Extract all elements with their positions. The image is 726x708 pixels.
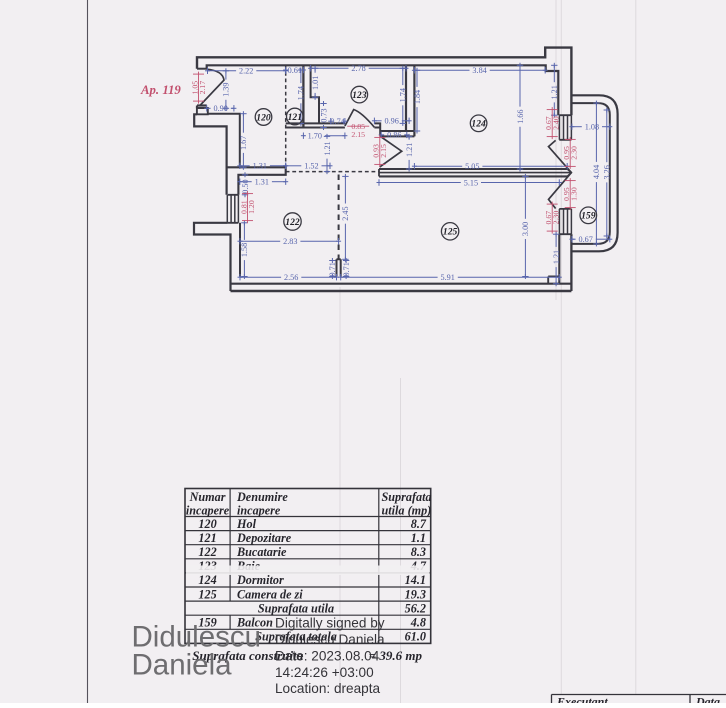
svg-text:Depozitare: Depozitare <box>236 531 292 545</box>
svg-text:19.3: 19.3 <box>405 587 426 601</box>
svg-text:2.15: 2.15 <box>379 144 388 158</box>
svg-text:1.52: 1.52 <box>304 162 318 171</box>
svg-text:159: 159 <box>581 211 596 222</box>
svg-text:0.73: 0.73 <box>319 108 328 122</box>
svg-text:121: 121 <box>198 531 216 545</box>
svg-text:0.96: 0.96 <box>385 117 399 126</box>
svg-text:120: 120 <box>256 112 271 123</box>
svg-text:3.00: 3.00 <box>521 222 530 236</box>
svg-text:124: 124 <box>198 573 216 587</box>
svg-text:Executant: Executant <box>556 695 608 704</box>
svg-text:1.39: 1.39 <box>222 83 231 97</box>
svg-text:incapere: incapere <box>186 504 230 518</box>
svg-text:123: 123 <box>352 90 367 101</box>
svg-text:1.31: 1.31 <box>253 162 267 171</box>
svg-text:5.91: 5.91 <box>441 273 455 282</box>
svg-text:0.71: 0.71 <box>342 262 351 276</box>
svg-text:122: 122 <box>198 545 216 559</box>
svg-text:1.74: 1.74 <box>399 88 408 102</box>
svg-text:0.71: 0.71 <box>328 262 337 276</box>
svg-text:2.30: 2.30 <box>552 211 561 225</box>
svg-text:2.83: 2.83 <box>283 237 297 246</box>
svg-text:1.21: 1.21 <box>405 143 414 157</box>
svg-text:Numar: Numar <box>189 490 226 504</box>
svg-text:2.22: 2.22 <box>239 67 253 76</box>
svg-text:8.3: 8.3 <box>411 545 426 559</box>
svg-text:3.84: 3.84 <box>472 66 486 75</box>
svg-text:56.2: 56.2 <box>405 601 426 615</box>
svg-text:Date: 2023.08.04: Date: 2023.08.04 <box>275 648 380 663</box>
svg-text:2.17: 2.17 <box>198 81 207 95</box>
svg-text:Hol: Hol <box>236 517 257 531</box>
svg-text:2.78: 2.78 <box>351 64 365 73</box>
svg-text:120: 120 <box>198 517 216 531</box>
svg-text:2.15: 2.15 <box>351 130 365 139</box>
svg-text:utila (mp): utila (mp) <box>382 504 432 518</box>
svg-text:0.86: 0.86 <box>387 131 401 140</box>
svg-text:14.1: 14.1 <box>405 573 426 587</box>
svg-text:5.05: 5.05 <box>465 162 479 171</box>
svg-text:2.45: 2.45 <box>341 206 350 220</box>
svg-text:0.67: 0.67 <box>579 235 593 244</box>
svg-text:Ap. 119: Ap. 119 <box>140 83 181 97</box>
svg-text:Denumire: Denumire <box>236 490 288 504</box>
svg-text:1.01: 1.01 <box>311 76 320 90</box>
svg-text:1.21: 1.21 <box>550 85 559 99</box>
svg-text:1.21: 1.21 <box>552 250 561 264</box>
svg-text:125: 125 <box>443 227 458 238</box>
svg-text:1.20: 1.20 <box>247 200 256 214</box>
svg-text:4.04: 4.04 <box>592 165 601 179</box>
svg-text:Suprafata: Suprafata <box>382 490 432 504</box>
svg-text:2.40: 2.40 <box>552 116 561 130</box>
svg-text:2.56: 2.56 <box>284 273 298 282</box>
svg-text:125: 125 <box>198 587 216 601</box>
svg-text:14:24:26 +03:00: 14:24:26 +03:00 <box>275 665 374 680</box>
svg-text:3.26: 3.26 <box>603 165 612 179</box>
svg-text:1.67: 1.67 <box>239 136 248 150</box>
svg-text:2.30: 2.30 <box>570 146 579 160</box>
svg-text:Digitally signed by: Digitally signed by <box>275 616 385 631</box>
svg-text:122: 122 <box>285 217 300 228</box>
svg-text:124: 124 <box>471 119 486 130</box>
svg-text:1.21: 1.21 <box>323 141 332 155</box>
svg-text:0.50: 0.50 <box>241 179 250 193</box>
svg-text:Camera de zi: Camera de zi <box>237 587 303 601</box>
svg-text:1.30: 1.30 <box>570 187 579 201</box>
svg-text:1.84: 1.84 <box>413 90 422 104</box>
svg-text:Data: Data <box>695 695 720 704</box>
svg-text:Dormitor: Dormitor <box>236 573 284 587</box>
svg-text:1.58: 1.58 <box>240 243 249 257</box>
svg-text:1.70: 1.70 <box>308 132 322 141</box>
svg-text:incapere: incapere <box>237 504 281 518</box>
svg-text:1.1: 1.1 <box>411 531 426 545</box>
svg-text:61.0: 61.0 <box>405 630 426 644</box>
svg-text:Location: dreapta: Location: dreapta <box>275 681 380 696</box>
svg-text:1.74: 1.74 <box>297 86 306 100</box>
svg-text:Bucatarie: Bucatarie <box>236 545 287 559</box>
svg-text:1.31: 1.31 <box>255 178 269 187</box>
svg-text:Daniela: Daniela <box>132 649 233 682</box>
svg-text:8.7: 8.7 <box>411 517 427 531</box>
svg-text:121: 121 <box>288 112 302 123</box>
svg-text:1.08: 1.08 <box>585 123 599 132</box>
svg-text:0.74: 0.74 <box>330 117 344 126</box>
svg-text:4.8: 4.8 <box>410 616 426 630</box>
svg-text:Suprafata utila: Suprafata utila <box>258 601 334 615</box>
svg-text:1.66: 1.66 <box>516 110 525 124</box>
svg-text:Didulescu Daniela: Didulescu Daniela <box>275 632 385 647</box>
svg-text:5.15: 5.15 <box>464 178 478 187</box>
